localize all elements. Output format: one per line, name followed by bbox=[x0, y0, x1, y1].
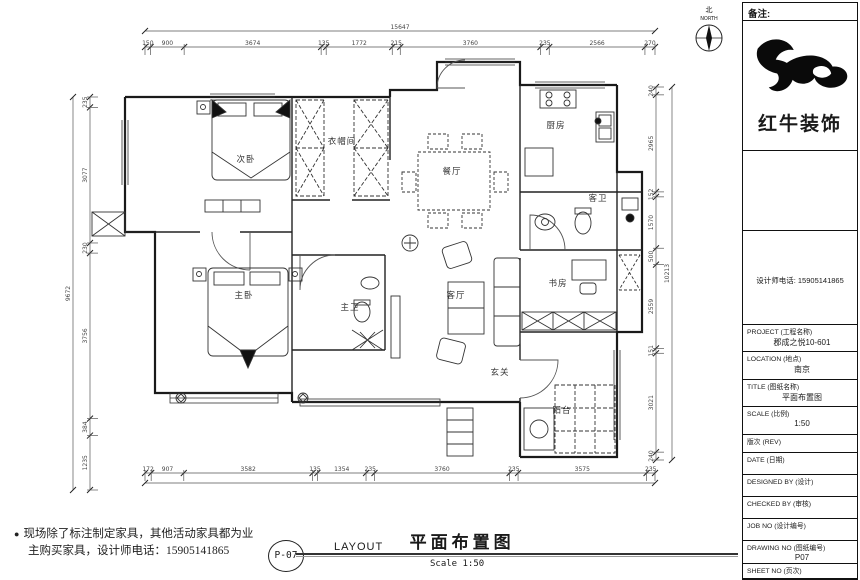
dim-value: 2965 bbox=[648, 136, 655, 151]
dim-value: 1354 bbox=[334, 466, 349, 473]
dim-value: 235 bbox=[365, 466, 377, 473]
compass-north-icon: 北 NORTH bbox=[696, 6, 722, 51]
dim-value: 907 bbox=[162, 466, 174, 473]
dim-value: 235 bbox=[82, 96, 89, 108]
room-label-entry: 玄关 bbox=[490, 367, 509, 378]
bed-master bbox=[176, 268, 308, 403]
remarks-label: 备注: bbox=[748, 9, 770, 20]
dim-value: 235 bbox=[508, 466, 520, 473]
titleblock-field-row: PROJECT (工程名称)郡成之悦10-601 bbox=[743, 325, 857, 352]
shaft-box bbox=[92, 212, 125, 236]
field-label: DESIGNED BY (设计) bbox=[747, 476, 857, 486]
field-label: TITLE (图纸名称) bbox=[747, 381, 857, 391]
dim-value: 1570 bbox=[648, 215, 655, 230]
shoe-cabinet bbox=[447, 408, 473, 456]
dim-value: 235 bbox=[539, 40, 551, 47]
drawing-title: LAYOUT 平面布置图 bbox=[296, 528, 736, 553]
dim-value: 172 bbox=[142, 466, 154, 473]
dim-value: 135 bbox=[309, 466, 321, 473]
field-label: 版次 (REV) bbox=[747, 436, 857, 446]
dim-value: 230 bbox=[82, 242, 89, 254]
titleblock: 备注: 红牛装饰 设计师电话: 15905141865 PROJECT (工程名… bbox=[742, 2, 858, 580]
dim-overall-value: 10213 bbox=[664, 264, 671, 283]
field-label: JOB NO (设计编号) bbox=[747, 520, 857, 530]
titleblock-field-row: DATE (日期) bbox=[743, 453, 857, 475]
title-rule bbox=[296, 553, 738, 555]
dim-chain-top: 150900367413517722153760235256627015647 bbox=[142, 24, 658, 55]
dimension-lines: 1509003674135177221537602352566270156471… bbox=[65, 24, 675, 493]
dim-value: 270 bbox=[644, 40, 656, 47]
field-value: 1:50 bbox=[747, 419, 857, 428]
designer-phone-box: 设计师电话: 15905141865 bbox=[743, 231, 857, 325]
dim-value: 1235 bbox=[82, 455, 89, 470]
kitchen-fixtures bbox=[525, 90, 614, 176]
titleblock-fields: PROJECT (工程名称)郡成之悦10-601LOCATION (地点)南京T… bbox=[743, 325, 857, 579]
room-label-master-bedroom: 主卧 bbox=[234, 290, 253, 301]
dim-value: 3674 bbox=[245, 40, 260, 47]
field-label: CHECKED BY (审核) bbox=[747, 498, 857, 508]
dim-value: 150 bbox=[142, 40, 154, 47]
titleblock-field-row: SCALE (比例)1:50 bbox=[743, 407, 857, 434]
field-label: PROJECT (工程名称) bbox=[747, 326, 857, 336]
titleblock-field-row: LOCATION (地点)南京 bbox=[743, 352, 857, 379]
drawing-title-en: LAYOUT bbox=[334, 541, 383, 553]
dim-value: 3021 bbox=[648, 395, 655, 410]
dim-chain-left: 2353077230375638412359672 bbox=[65, 94, 98, 493]
dim-value: 135 bbox=[318, 40, 330, 47]
dim-value: 500 bbox=[648, 251, 655, 263]
designer-phone: 设计师电话: 15905141865 bbox=[743, 275, 857, 286]
note-line2: 主购买家具，设计师电话：15905141865 bbox=[28, 543, 264, 560]
dim-value: 235 bbox=[645, 466, 657, 473]
field-value: 南京 bbox=[747, 364, 857, 375]
dim-value: 1772 bbox=[352, 40, 367, 47]
floor-plan-svg: 次卧衣帽间餐厅厨房客卫主卧主卫客厅书房玄关阳台 1509003674135177… bbox=[0, 0, 740, 520]
room-label-living-room: 客厅 bbox=[446, 290, 465, 301]
field-label: DRAWING NO (图纸编号) bbox=[747, 542, 857, 552]
room-label-balcony: 阳台 bbox=[552, 405, 571, 416]
dim-overall-value: 9672 bbox=[65, 286, 72, 301]
page: 次卧衣帽间餐厅厨房客卫主卧主卫客厅书房玄关阳台 1509003674135177… bbox=[0, 0, 860, 580]
balcony-fixtures bbox=[524, 385, 615, 453]
floor-plan: 次卧衣帽间餐厅厨房客卫主卧主卫客厅书房玄关阳台 1509003674135177… bbox=[0, 0, 740, 520]
room-label-kitchen: 厨房 bbox=[546, 120, 565, 131]
footer: ●现场除了标注制定家具，其他活动家具都为业 主购买家具，设计师电话：159051… bbox=[0, 520, 742, 580]
room-label-master-bath: 主卫 bbox=[340, 302, 359, 313]
svg-text:NORTH: NORTH bbox=[700, 16, 718, 22]
dim-value: 151 bbox=[648, 345, 655, 357]
dim-value: 3077 bbox=[82, 167, 89, 182]
brand-box: 红牛装饰 bbox=[743, 21, 857, 151]
scale-text: Scale 1:50 bbox=[430, 559, 550, 569]
field-label: LOCATION (地点) bbox=[747, 353, 857, 363]
titleblock-field-row: TITLE (图纸名称)平面布置图 bbox=[743, 380, 857, 407]
field-value: 平面布置图 bbox=[747, 392, 857, 403]
brand-name: 红牛装饰 bbox=[743, 109, 857, 136]
guest-bath-fixtures bbox=[535, 198, 638, 234]
note-line1: 现场除了标注制定家具，其他活动家具都为业 bbox=[23, 528, 253, 540]
dim-value: 3760 bbox=[434, 466, 449, 473]
svg-text:北: 北 bbox=[706, 6, 713, 14]
titleblock-field-row: 版次 (REV) bbox=[743, 435, 857, 453]
empty-box bbox=[743, 151, 857, 231]
dim-value: 3756 bbox=[82, 328, 89, 343]
titleblock-field-row: DRAWING NO (图纸编号)P07 bbox=[743, 541, 857, 565]
dim-chain-right: 240296515215705002559151302124010213 bbox=[648, 84, 675, 463]
study-furniture bbox=[522, 255, 640, 330]
dim-value: 240 bbox=[648, 85, 655, 97]
room-label-bedroom-2: 次卧 bbox=[236, 154, 255, 165]
field-label: DATE (日期) bbox=[747, 454, 857, 464]
room-label-guest-bath: 客卫 bbox=[588, 193, 607, 204]
dim-value: 3582 bbox=[241, 466, 256, 473]
dim-overall-value: 15647 bbox=[390, 24, 409, 31]
dim-value: 384 bbox=[82, 421, 89, 433]
room-label-dining-room: 餐厅 bbox=[442, 167, 461, 177]
dim-value: 3575 bbox=[575, 466, 590, 473]
field-value: 郡成之悦10-601 bbox=[747, 337, 857, 348]
dim-value: 900 bbox=[162, 40, 174, 47]
room-label-cloakroom: 衣帽间 bbox=[328, 136, 357, 147]
room-label-study: 书房 bbox=[548, 278, 567, 289]
dim-value: 3760 bbox=[463, 40, 478, 47]
cloakroom-wardrobes bbox=[296, 100, 388, 196]
field-value: P07 bbox=[747, 553, 857, 562]
master-bath-fixtures bbox=[352, 277, 383, 350]
bullet-icon: ● bbox=[14, 529, 19, 539]
dim-value: 215 bbox=[391, 40, 403, 47]
titleblock-field-row: SHEET NO (页次) bbox=[743, 564, 857, 579]
titleblock-field-row: DESIGNED BY (设计) bbox=[743, 475, 857, 497]
drawing-title-cn: 平面布置图 bbox=[410, 528, 515, 553]
dim-chain-bottom: 1729073582135135423537602353575235 bbox=[142, 466, 658, 486]
doors bbox=[212, 60, 565, 398]
title-rule-thin bbox=[296, 556, 738, 557]
field-label: SCALE (比例) bbox=[747, 408, 857, 418]
dining-table bbox=[402, 134, 508, 228]
titleblock-field-row: CHECKED BY (审核) bbox=[743, 497, 857, 519]
dim-value: 2559 bbox=[648, 299, 655, 314]
site-note: ●现场除了标注制定家具，其他活动家具都为业 主购买家具，设计师电话：159051… bbox=[14, 526, 264, 560]
dim-value: 152 bbox=[648, 188, 655, 200]
dim-value: 240 bbox=[648, 450, 655, 462]
dim-value: 2566 bbox=[589, 40, 604, 47]
titleblock-field-row: JOB NO (设计编号) bbox=[743, 519, 857, 541]
brand-logo-bull-icon bbox=[748, 27, 852, 109]
remarks-header: 备注: bbox=[743, 3, 857, 21]
field-label: SHEET NO (页次) bbox=[747, 565, 857, 575]
